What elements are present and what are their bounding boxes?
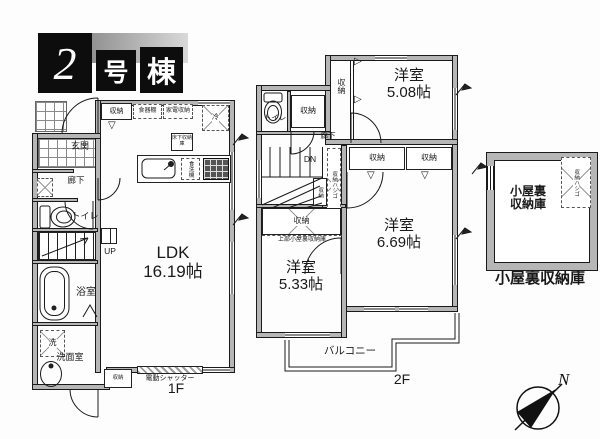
dishwasher-label: 食洗機 (187, 161, 193, 178)
refrigerator-space: 冷 (202, 105, 229, 131)
hallway-1f-label: 廊下 (56, 176, 96, 186)
ldk-label: LDK 16.19帖 (126, 243, 220, 281)
stairs-1f (38, 232, 96, 260)
dishwasher: 食洗機 (181, 158, 200, 180)
window-2f-balcony-533 (285, 332, 330, 338)
closet-2f-hall-label: 収納 (300, 107, 316, 116)
title-building-box: 棟 (140, 47, 183, 93)
appliance-storage: 家電収納 (163, 104, 193, 119)
wall-2f-mid-vertical (341, 145, 347, 338)
floorplan-page: 2 号 棟 収納 ▽ 食器棚 家電収納 冷 床下収納庫 食洗機 (0, 0, 600, 439)
attic-name: 小屋裏 収納庫 (496, 185, 560, 212)
window-2f-right-lower (452, 235, 458, 285)
storage-ladder-attic: 収納ハシゴ (561, 157, 591, 208)
hanger-mark-669b: ▽ (421, 171, 429, 181)
washroom-label: 洗面室 (44, 352, 96, 362)
bathroom-label: 浴室 (68, 287, 104, 298)
kitchen-closet-label: 収納 (110, 108, 124, 116)
toilet-2f-tank (264, 93, 282, 102)
stairs-up-label: UP (98, 247, 122, 257)
room-508-size: 5.08帖 (387, 84, 431, 101)
wall-1f-bottom-left (32, 384, 110, 390)
wall-1f-toilet-stairs (32, 228, 98, 232)
door-entrance (62, 98, 98, 134)
balcony-label: バルコニー (308, 346, 392, 358)
closet-669-b-label: 収納 (421, 154, 437, 163)
room-669-label: 洋室 6.69帖 (362, 218, 436, 252)
attic-caption: 小屋裏収納庫 (478, 271, 600, 288)
window-1f-bottom (203, 367, 230, 373)
wall-1f-bath-wash (32, 322, 98, 326)
ldk-name: LDK (156, 243, 189, 262)
wall-1f-right (229, 100, 235, 373)
storage-ladder-2f-label: 収納ハシゴ (331, 171, 337, 199)
kitchen-closet: 収納 (101, 103, 132, 120)
hanger-mark-669a: ▽ (367, 171, 375, 181)
balcony-fence-inner (287, 313, 457, 369)
window-2f-right-upper (452, 88, 458, 130)
bathtub (40, 267, 69, 320)
stairs-1f-lower (100, 228, 117, 244)
hanger-mark-508b: ▷ (354, 95, 362, 105)
title-unit-box: 号 (96, 50, 136, 91)
closet-669-a: 収納 (349, 147, 405, 170)
ldk-size: 16.19帖 (143, 262, 203, 281)
hanger-mark-kitchen: ▽ (108, 121, 116, 131)
room-508-name: 洋室 (394, 67, 424, 84)
closet-2f-hall: 収納 (291, 95, 325, 128)
vent-mark-attic (472, 163, 487, 174)
vent-mark-1f-upper (233, 134, 248, 145)
storage-box-bottom-label: 収納 (112, 375, 123, 381)
compass: N (515, 370, 571, 430)
vent-mark-2f-lower (456, 228, 471, 239)
room-669-size: 6.69帖 (377, 234, 421, 251)
vent-mark-2f-upper (456, 84, 471, 95)
upper-attic-dash-line (262, 235, 342, 236)
title-number-box: 2 (38, 33, 92, 93)
window-2f-top (375, 55, 407, 61)
wall-1f-stairs-bath (32, 260, 98, 264)
wash-basin-tap (49, 364, 53, 368)
attic-name-line1: 小屋裏 (510, 184, 546, 198)
storage-ladder-attic-label: 収納ハシゴ (573, 169, 579, 197)
hallway-2f-label: 廊下 (314, 132, 342, 140)
porch-tiles (35, 101, 67, 132)
room-533-size: 5.33帖 (279, 276, 323, 293)
washer-label: 洗 (49, 339, 57, 348)
title-number: 2 (54, 37, 77, 90)
hanger-mark-508a: ▷ (354, 57, 362, 67)
door-room-669 (347, 172, 383, 208)
compass-circle (517, 387, 559, 429)
entrance-label: 玄関 (52, 141, 108, 151)
door-ldk (98, 178, 120, 200)
stairs-down-label: DN (299, 155, 321, 165)
title-unit: 号 (103, 53, 128, 89)
wall-2f-leftcol-top (256, 85, 331, 91)
closet-669-a-label: 収納 (369, 154, 385, 163)
closet-533: 収納 (262, 208, 341, 235)
compass-north-label: N (557, 370, 571, 389)
room-508-label: 洋室 5.08帖 (372, 68, 446, 102)
window-2f-balcony-669a (364, 306, 395, 312)
attic-name-line2: 収納庫 (510, 197, 546, 211)
floor2-label: 2F (384, 372, 420, 388)
room-669-name: 洋室 (384, 217, 414, 234)
toilet-1f-label: トイレ (68, 211, 102, 221)
dish-cabinet-label: 食器棚 (138, 108, 156, 115)
wall-1f-entrance-hall (32, 169, 74, 173)
upper-attic-note: 上部小屋裏収納庫 (266, 237, 338, 244)
gas-stove (203, 158, 229, 180)
window-2f-left (256, 160, 262, 198)
underfloor-storage: 床下収納庫 (171, 133, 193, 151)
storage-box-bottom: 収納 (104, 369, 132, 388)
closet-669-b: 収納 (406, 147, 452, 170)
compass-line (515, 384, 562, 430)
balcony-fence-outer (287, 313, 457, 369)
shoe-cabinet (37, 178, 53, 197)
wash-basin (41, 362, 62, 387)
toilet-1f-tank (40, 206, 50, 228)
toilet-2f-label: トイレ (261, 114, 289, 122)
vent-mark-1f-lower (233, 214, 248, 225)
room-533-name: 洋室 (286, 259, 316, 276)
door-washroom-exterior (70, 389, 98, 417)
title-building: 棟 (147, 49, 176, 91)
floor1-label: 1F (158, 381, 194, 397)
wall-1f-hall-toilet (32, 198, 78, 202)
shutter-window (137, 366, 203, 374)
window-1f-right-lower (229, 242, 235, 294)
closet-2f-stairs-label: 収納 (317, 187, 323, 198)
underfloor-storage-label: 床下収納庫 (172, 136, 192, 147)
bathtub-drain (52, 306, 56, 310)
bathtub-inner (45, 272, 65, 316)
room-533-label: 洋室 5.33帖 (264, 260, 338, 294)
hanger-pipe-508a (350, 61, 351, 139)
wall-1f-entrance-top (32, 133, 101, 139)
wall-2f-508-bottom (325, 139, 458, 145)
refrigerator-label: 冷 (212, 114, 219, 122)
compass-needle (517, 389, 556, 428)
closet-2f-stairs: 収納 (313, 178, 327, 206)
window-attic-left (487, 166, 494, 190)
dish-cabinet: 食器棚 (133, 104, 162, 119)
window-2f-balcony-669b (399, 306, 428, 312)
appliance-storage-label: 家電収納 (166, 108, 190, 115)
closet-533-label: 収納 (294, 217, 310, 226)
closet-508-label: 収納 (333, 66, 345, 106)
